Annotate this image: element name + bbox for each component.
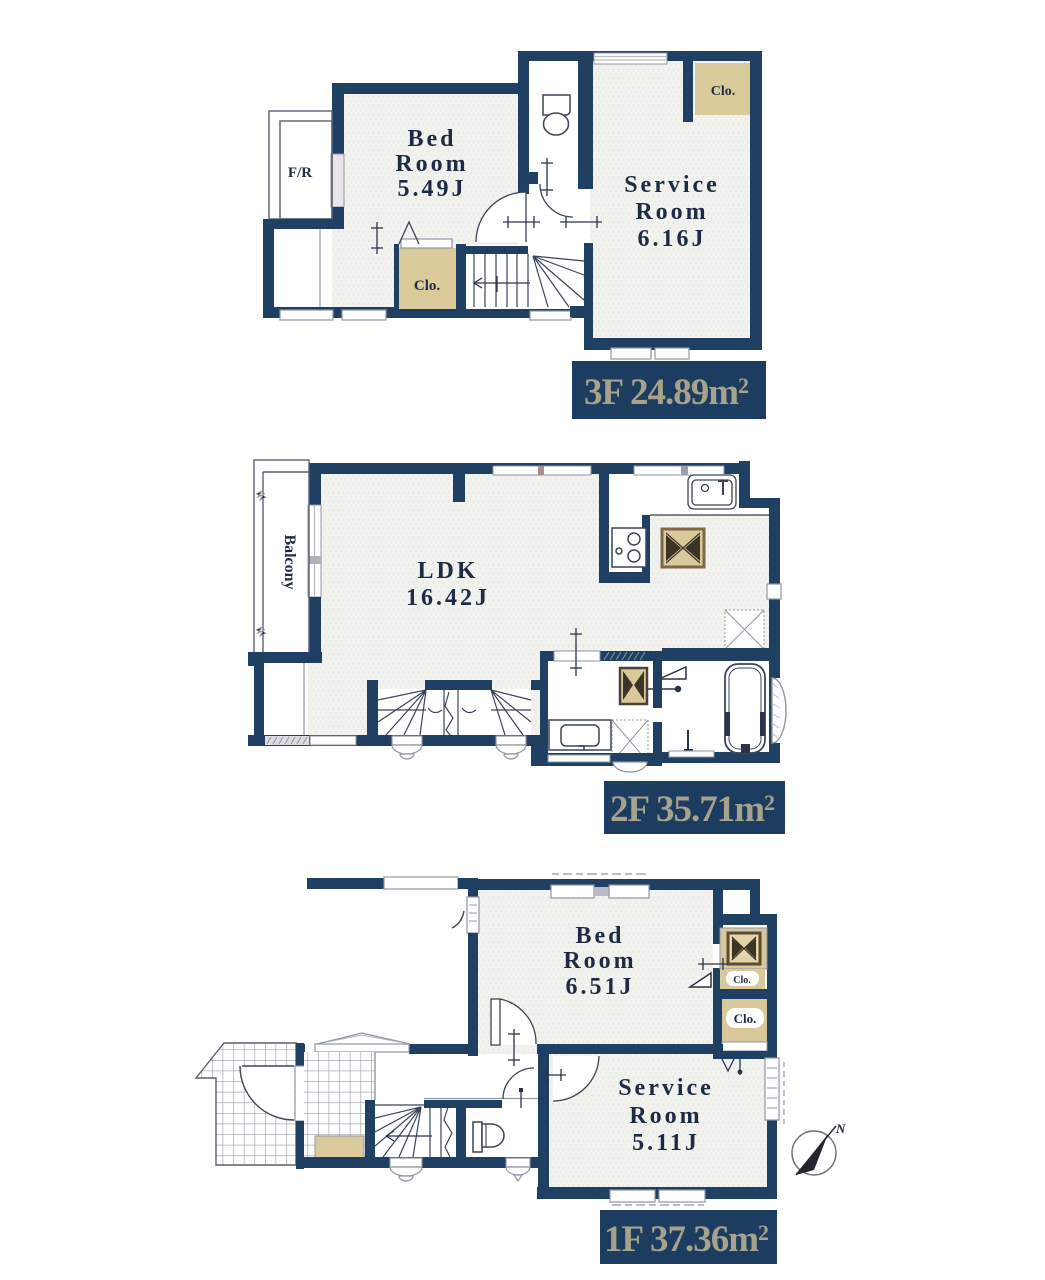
- svg-text:3F 24.89m2: 3F 24.89m2: [584, 372, 749, 413]
- svg-text:Bed: Bed: [407, 126, 456, 152]
- svg-text:Service: Service: [624, 172, 720, 198]
- svg-text:5.49J: 5.49J: [398, 176, 467, 202]
- svg-text:Room: Room: [395, 151, 468, 177]
- svg-text:Clo.: Clo.: [734, 1011, 757, 1026]
- svg-text:Clo.: Clo.: [711, 84, 736, 99]
- svg-text:LDK: LDK: [417, 558, 478, 584]
- svg-text:6.16J: 6.16J: [638, 226, 707, 252]
- svg-text:Balcony: Balcony: [281, 534, 298, 589]
- svg-text:Clo.: Clo.: [414, 278, 441, 294]
- svg-text:5.11J: 5.11J: [632, 1130, 700, 1156]
- svg-text:Room: Room: [563, 948, 636, 974]
- svg-text:N: N: [835, 1121, 846, 1136]
- svg-text:F/R: F/R: [288, 165, 312, 181]
- svg-text:16.42J: 16.42J: [406, 585, 490, 611]
- svg-text:Room: Room: [629, 1103, 702, 1129]
- svg-text:1F 37.36m2: 1F 37.36m2: [604, 1219, 769, 1260]
- svg-text:Room: Room: [635, 199, 708, 225]
- svg-text:Clo.: Clo.: [733, 975, 751, 986]
- svg-text:6.51J: 6.51J: [566, 974, 635, 1000]
- svg-text:Bed: Bed: [575, 923, 624, 949]
- svg-text:Service: Service: [618, 1075, 714, 1101]
- svg-text:2F 35.71m2: 2F 35.71m2: [610, 789, 775, 830]
